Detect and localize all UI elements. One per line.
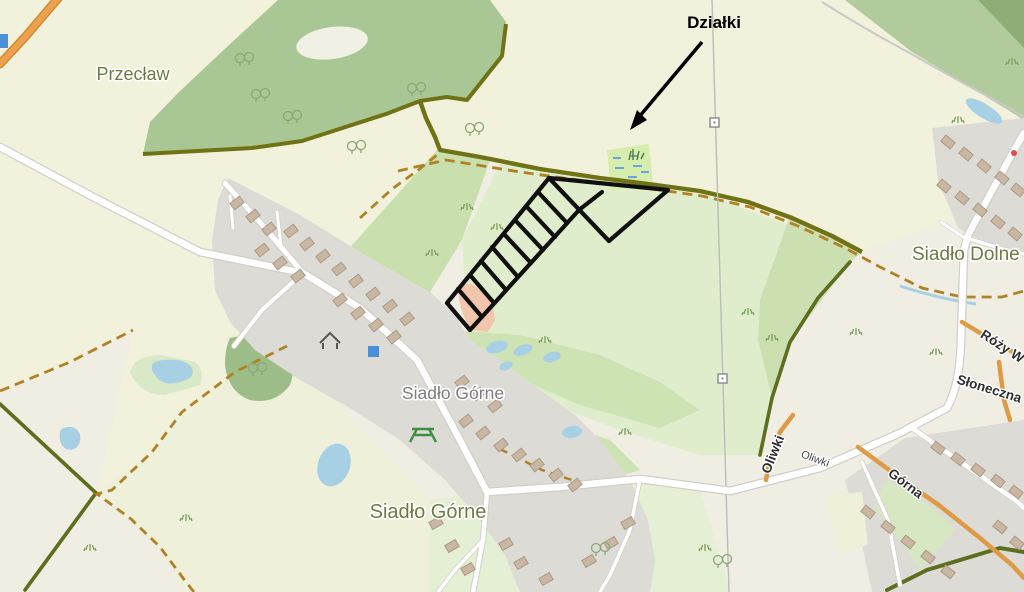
map-canvas: Przecław Siadło Górne Siadło Górne Siadł…: [0, 0, 1024, 592]
red-poi-dot: [1011, 150, 1017, 156]
place-label-przeclaw: Przecław: [96, 64, 170, 84]
blue-marker-edge: [0, 34, 8, 48]
place-label-siadlo-gorne-upper: Siadło Górne: [402, 383, 504, 403]
place-label-siadlo-gorne-lower: Siadło Górne: [370, 501, 487, 523]
power-pole-icon: [710, 118, 719, 127]
place-label-siadlo-dolne: Siadło Dolne: [912, 244, 1020, 265]
annotation-title: Działki: [687, 13, 741, 32]
power-pole-icon: [718, 374, 727, 383]
map-viewport[interactable]: Przecław Siadło Górne Siadło Górne Siadł…: [0, 0, 1024, 592]
blue-marker: [368, 346, 379, 357]
